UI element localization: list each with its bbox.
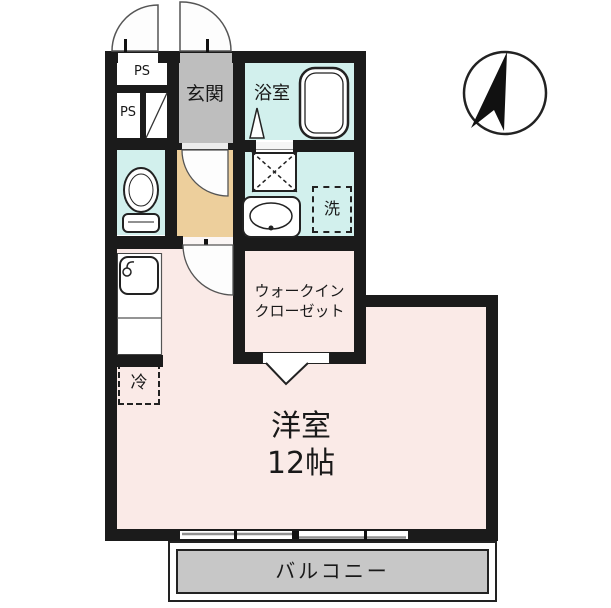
kitchen-sink-icon xyxy=(117,253,162,355)
closet-door-chevron xyxy=(266,363,308,384)
closet-label-line2: クローゼット xyxy=(245,301,354,321)
ps-top-label: PS xyxy=(117,65,167,80)
washbasin-icon xyxy=(243,197,300,237)
floor-plan: バルコニー 冷 洗 xyxy=(0,0,611,608)
ps-door-arc xyxy=(112,5,158,51)
bathroom-label: 浴室 xyxy=(244,84,300,105)
closet-label-line1: ウォークイン xyxy=(245,281,354,301)
western-room-name: 洋室 xyxy=(221,408,381,445)
meter-box-diagonal xyxy=(146,93,167,138)
western-room-size: 12帖 xyxy=(221,445,381,482)
entrance-label: 玄関 xyxy=(177,84,233,106)
closet-label: ウォークイン クローゼット xyxy=(245,281,354,321)
hall-door-arc xyxy=(182,150,228,196)
entrance-door-arc xyxy=(180,2,231,51)
western-room-label: 洋室 12帖 xyxy=(221,408,381,482)
bathtub-icon xyxy=(300,68,348,138)
toilet-icon xyxy=(123,168,159,232)
room-door-arc xyxy=(183,245,233,295)
bath-faucet-icon xyxy=(250,108,264,138)
shower-pan-x-icon xyxy=(252,152,297,192)
compass-icon xyxy=(464,52,546,134)
ps-bottom-label: PS xyxy=(110,106,146,121)
sliding-window-icon xyxy=(182,530,406,540)
